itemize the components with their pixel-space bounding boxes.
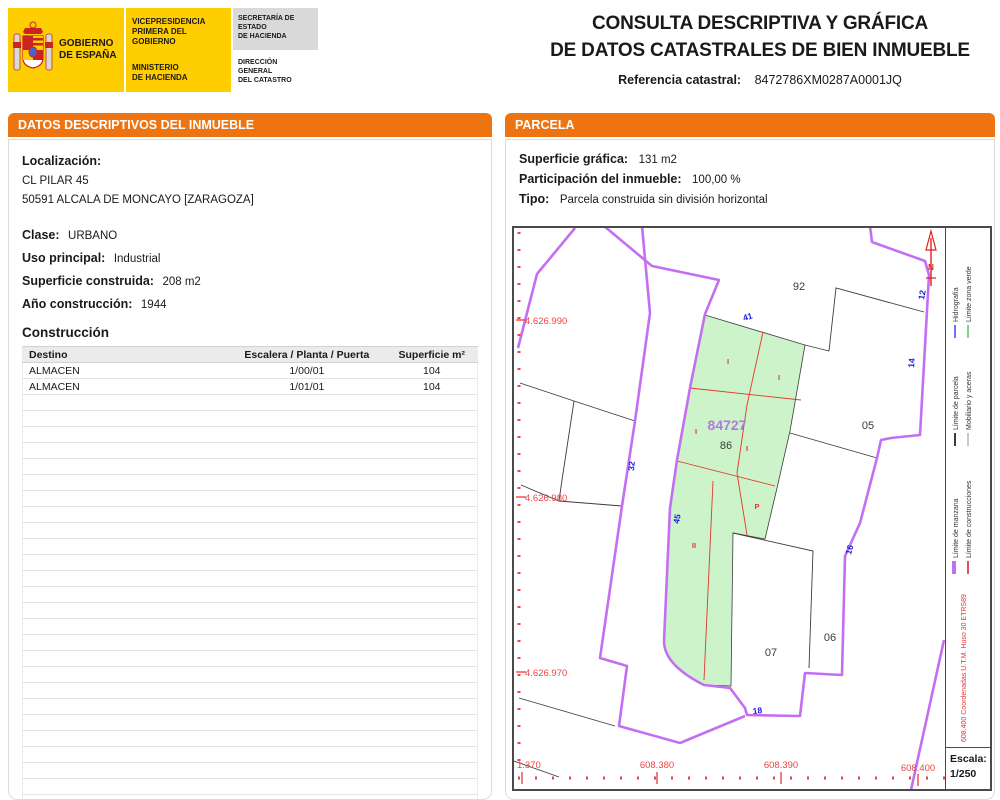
legend-entry-limite-construcciones: Límite de construcciones [965, 481, 974, 574]
superficie-grafica-label: Superficie gráfica: [519, 152, 628, 166]
secretaria-label: SECRETARÍA DE ESTADO DE HACIENDA [233, 8, 318, 50]
tipo-row: Tipo: Parcela construida sin división ho… [519, 192, 981, 206]
parcela-panel: PARCELA Superficie gráfica: 131 m2 Parti… [505, 113, 995, 800]
page: GOBIERNO DE ESPAÑA VICEPRESIDENCIA PRIME… [0, 0, 1000, 800]
scale-box: Escala: 1/250 [946, 747, 990, 789]
address-line-1: CL PILAR 45 [22, 175, 478, 187]
cell-superficie: 104 [387, 379, 478, 395]
clase-label: Clase: [22, 228, 60, 242]
parcel-map-svg: 4.626.990 4.626.980 4.626.970 1.370 608.… [514, 228, 945, 789]
table-empty-row [23, 779, 478, 795]
participacion-value: 100,00 % [692, 174, 741, 186]
table-empty-row [23, 763, 478, 779]
table-empty-row [23, 411, 478, 427]
x-coordinate-label: 608.390 [764, 760, 798, 771]
table-empty-row [23, 619, 478, 635]
participacion-label: Participación del inmueble: [519, 172, 682, 186]
manzana-number-label: 84727 [708, 417, 747, 433]
table-empty-row [23, 747, 478, 763]
table-empty-row [23, 491, 478, 507]
superficie-value: 208 m2 [162, 276, 200, 288]
clase-value: URBANO [68, 230, 117, 242]
table-empty-row [23, 571, 478, 587]
street-number: 18 [752, 705, 763, 716]
anio-row: Año construcción: 1944 [22, 297, 478, 311]
street-number: 12 [916, 289, 928, 300]
cell-destino: ALMACEN [23, 363, 228, 379]
legend-swatch [954, 325, 956, 338]
x-coordinate-label: 1.370 [517, 760, 541, 771]
legend-entry-mobiliario: Mobiliario y aceras [965, 372, 974, 446]
legend-swatch [954, 433, 956, 446]
uso-row: Uso principal: Industrial [22, 251, 478, 265]
legend-swatch [967, 325, 969, 338]
table-row: ALMACEN 1/00/01 104 [23, 363, 478, 379]
gobierno-espana-label: GOBIERNO DE ESPAÑA [59, 38, 117, 62]
escala-label: Escala: [950, 752, 986, 767]
table-empty-row [23, 667, 478, 683]
table-empty-row [23, 635, 478, 651]
logo-secretaria-block: SECRETARÍA DE ESTADO DE HACIENDA DIRECCI… [231, 8, 318, 92]
anio-value: 1944 [141, 299, 167, 311]
escala-value: 1/250 [950, 767, 986, 782]
localizacion-label: Localización: [22, 154, 478, 168]
construction-label: I [727, 357, 729, 366]
map-legend: Hidrografía Límite zona verde Límite de … [945, 228, 990, 789]
ministerio-label: MINISTERIO DE HACIENDA [132, 63, 225, 83]
x-coordinate-label: 608.380 [640, 760, 674, 771]
construccion-title: Construcción [22, 325, 478, 340]
table-empty-row [23, 523, 478, 539]
street-number: 16 [843, 544, 855, 556]
superficie-grafica-row: Superficie gráfica: 131 m2 [519, 152, 981, 166]
legend-label: Límite de parcela [953, 376, 960, 430]
logo-ministerio-block: VICEPRESIDENCIA PRIMERA DEL GOBIERNO MIN… [124, 8, 231, 92]
datos-descriptivos-panel: DATOS DESCRIPTIVOS DEL INMUEBLE Localiza… [8, 113, 492, 800]
legend-label: Mobiliario y aceras [966, 372, 973, 430]
x-coordinate-label: 608.400 [901, 763, 935, 774]
construction-table-header-row: Destino Escalera / Planta / Puerta Super… [23, 347, 478, 363]
col-header-destino: Destino [23, 347, 228, 363]
table-empty-row [23, 475, 478, 491]
construction-table-body: ALMACEN 1/00/01 104 ALMACEN 1/01/01 104 [23, 363, 478, 395]
legend-entry-limite-parcela: Límite de parcela [952, 376, 961, 446]
reference-value: 8472786XM0287A0001JQ [755, 73, 902, 87]
table-empty-row [23, 555, 478, 571]
north-label: N [928, 263, 934, 272]
utm-coordinates-note: 608.400 Coordenadas U.T.M. Huso 30 ETRS8… [960, 594, 969, 742]
parcela-header: PARCELA [505, 113, 995, 137]
table-empty-row [23, 587, 478, 603]
street-number: 45 [671, 513, 683, 524]
parcela-body: Superficie gráfica: 131 m2 Participación… [505, 139, 995, 800]
table-empty-row [23, 427, 478, 443]
parcel-label-92: 92 [793, 281, 805, 293]
title-line-1: CONSULTA DESCRIPTIVA Y GRÁFICA [530, 10, 990, 37]
legend-entry-hidrografia: Hidrografía [952, 287, 961, 338]
cell-escalera: 1/01/01 [227, 379, 386, 395]
document-title: CONSULTA DESCRIPTIVA Y GRÁFICA DE DATOS … [530, 10, 990, 87]
legend-entry-zona-verde: Límite zona verde [965, 266, 974, 338]
table-empty-row [23, 699, 478, 715]
legend-label: Límite zona verde [966, 266, 973, 322]
government-header: GOBIERNO DE ESPAÑA VICEPRESIDENCIA PRIME… [0, 0, 1000, 106]
table-empty-row [23, 731, 478, 747]
uso-label: Uso principal: [22, 251, 105, 265]
parcel-label-07: 07 [765, 647, 777, 659]
construction-table-empty-rows [23, 395, 478, 800]
table-empty-row [23, 443, 478, 459]
street-number: 32 [626, 461, 637, 472]
legend-swatch [967, 561, 969, 574]
col-header-escalera: Escalera / Planta / Puerta [227, 347, 386, 363]
title-line-2: DE DATOS CATASTRALES DE BIEN INMUEBLE [530, 37, 990, 64]
government-logo: GOBIERNO DE ESPAÑA VICEPRESIDENCIA PRIME… [8, 8, 320, 92]
table-empty-row [23, 715, 478, 731]
tipo-value: Parcela construida sin división horizont… [560, 194, 768, 206]
table-empty-row [23, 395, 478, 411]
parcel-label-05: 05 [862, 420, 874, 432]
north-arrow-icon: N [926, 231, 936, 286]
table-empty-row [23, 603, 478, 619]
table-empty-row [23, 795, 478, 800]
street-number: 41 [742, 311, 754, 323]
address-line-2: 50591 ALCALA DE MONCAYO [ZARAGOZA] [22, 194, 478, 206]
tipo-label: Tipo: [519, 192, 549, 206]
cell-destino: ALMACEN [23, 379, 228, 395]
clase-row: Clase: URBANO [22, 228, 478, 242]
superficie-grafica-value: 131 m2 [639, 154, 677, 166]
parcel-label-86: 86 [720, 440, 732, 452]
legend-label: Hidrografía [953, 287, 960, 322]
anio-label: Año construcción: [22, 297, 132, 311]
cell-escalera: 1/00/01 [227, 363, 386, 379]
reference-label: Referencia catastral: [618, 73, 741, 87]
table-empty-row [23, 507, 478, 523]
y-coordinate-label: 4.626.990 [525, 316, 567, 327]
street-number: 14 [906, 358, 917, 369]
logo-gobierno-block: GOBIERNO DE ESPAÑA [8, 8, 124, 92]
construction-label: I [746, 444, 748, 453]
parcel-map: 4.626.990 4.626.980 4.626.970 1.370 608.… [514, 228, 945, 789]
construction-label: I [778, 373, 780, 382]
subject-parcel-shape [664, 315, 805, 686]
table-empty-row [23, 683, 478, 699]
legend-label: Límite de manzana [953, 498, 960, 558]
legend-swatch [967, 433, 969, 446]
parcel-label-06: 06 [824, 632, 836, 644]
cadastral-reference: Referencia catastral: 8472786XM0287A0001… [530, 73, 990, 87]
legend-swatch [952, 561, 956, 574]
datos-descriptivos-body: Localización: CL PILAR 45 50591 ALCALA D… [8, 139, 492, 800]
table-row: ALMACEN 1/01/01 104 [23, 379, 478, 395]
y-coordinate-label: 4.626.970 [525, 668, 567, 679]
table-empty-row [23, 539, 478, 555]
y-coordinate-label: 4.626.980 [525, 493, 567, 504]
cell-superficie: 104 [387, 363, 478, 379]
construction-label: I [695, 427, 697, 436]
construction-label: II [692, 541, 696, 550]
table-empty-row [23, 651, 478, 667]
uso-value: Industrial [114, 253, 161, 265]
col-header-superficie: Superficie m² [387, 347, 478, 363]
vicepresidencia-label: VICEPRESIDENCIA PRIMERA DEL GOBIERNO [132, 17, 225, 47]
legend-entry-limite-manzana: Límite de manzana [952, 498, 961, 574]
parcel-map-frame: 4.626.990 4.626.980 4.626.970 1.370 608.… [512, 226, 992, 791]
datos-descriptivos-header: DATOS DESCRIPTIVOS DEL INMUEBLE [8, 113, 492, 137]
construction-label: P [754, 502, 759, 511]
construction-table: Destino Escalera / Planta / Puerta Super… [22, 346, 478, 800]
superficie-label: Superficie construida: [22, 274, 154, 288]
spain-coat-of-arms-icon [12, 18, 54, 82]
direccion-catastro-label: DIRECCIÓN GENERAL DEL CATASTRO [233, 50, 318, 92]
table-empty-row [23, 459, 478, 475]
superficie-row: Superficie construida: 208 m2 [22, 274, 478, 288]
participacion-row: Participación del inmueble: 100,00 % [519, 172, 981, 186]
legend-label: Límite de construcciones [966, 481, 973, 558]
